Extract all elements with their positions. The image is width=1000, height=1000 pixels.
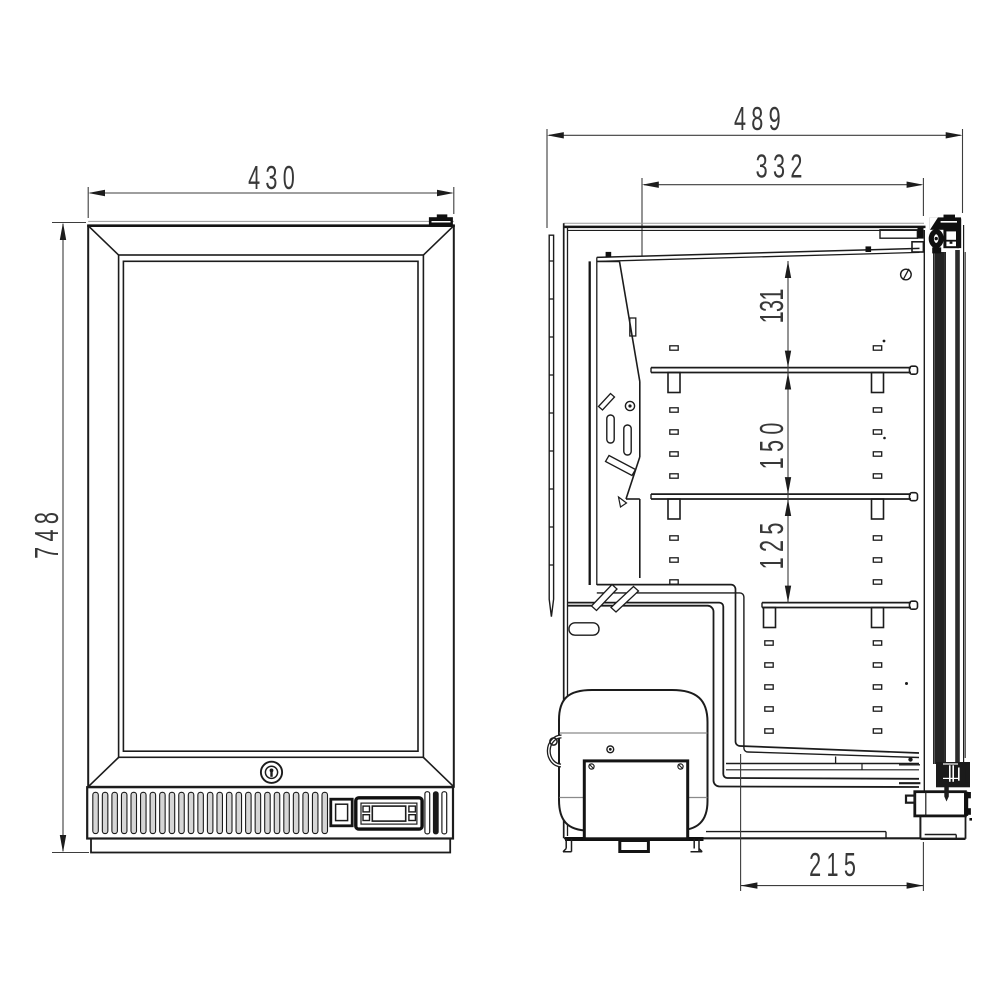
svg-text:150: 150 xyxy=(753,417,790,469)
svg-text:215: 215 xyxy=(809,846,861,883)
svg-text:131: 131 xyxy=(753,289,790,323)
svg-text:430: 430 xyxy=(248,159,300,196)
svg-text:332: 332 xyxy=(756,148,808,185)
svg-text:125: 125 xyxy=(753,517,790,569)
svg-text:489: 489 xyxy=(734,100,786,137)
svg-text:748: 748 xyxy=(28,507,65,559)
